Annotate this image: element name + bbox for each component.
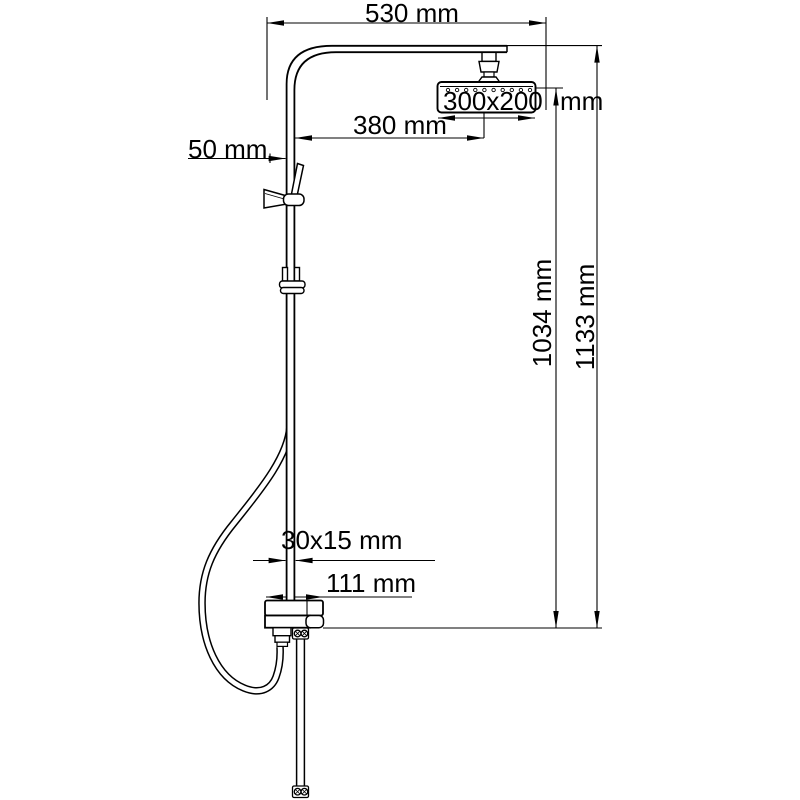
pipe-fitting-bottom [293,786,309,798]
hand-shower-holder-clamp [284,194,305,206]
mixer-upper-tier [265,601,323,616]
pipe-fitting-top [293,628,309,639]
hand-shower-hose [202,426,290,691]
mixer-lower-tier [265,616,310,628]
dim-label-height-to-head: 1034 mm [529,259,555,367]
dim-label-arm-reach: 380 mm [353,112,447,138]
hose-port [273,628,291,636]
hose-nut [275,636,290,643]
dim-label-riser-section: 30x15 mm [281,527,402,553]
dim-label-head-size: 300x200 mm [443,88,603,114]
dim-30x15 [253,558,435,563]
hand-shower-assembly [264,164,304,209]
mixer-diverter-knob [306,616,324,628]
head-swivel-neck [482,52,496,61]
dim-label-holder-offset: 50 mm [188,136,267,162]
slider-ring-lower [281,288,305,294]
dim-300x200 [438,115,535,120]
technical-drawing-canvas: 530 mm 300x200 mm 380 mm 50 mm 1034 mm 1… [0,0,800,800]
dim-label-mixer-width: 111 mm [326,570,416,596]
dim-label-total-height: 1133 mm [572,264,598,370]
rail-inner-edge [294,52,336,601]
dim-label-top-width: 530 mm [365,0,459,26]
supply-pipe [293,628,309,798]
